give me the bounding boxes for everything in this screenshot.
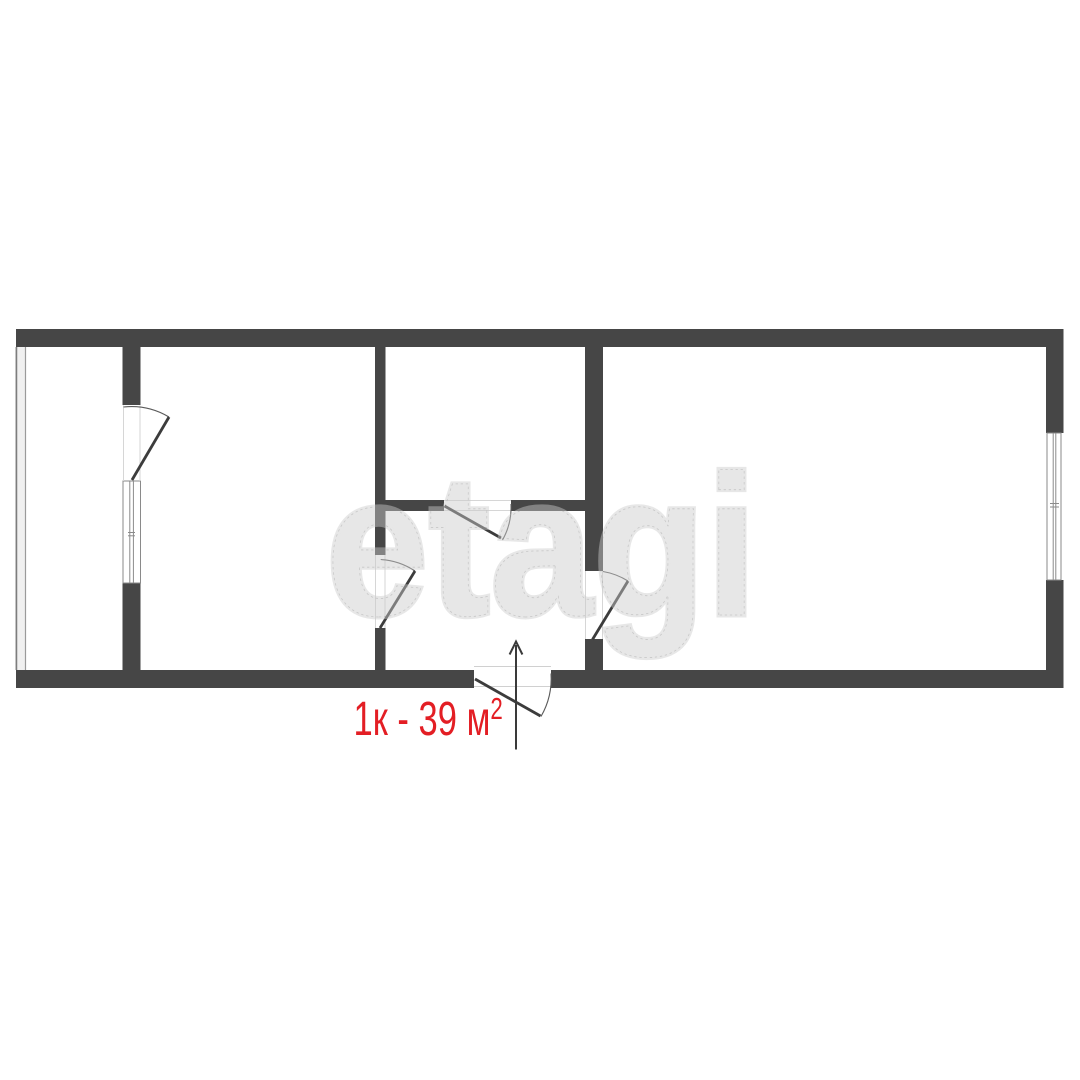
svg-text:1к - 39 м2: 1к - 39 м2 — [354, 691, 503, 745]
svg-text:etagi: etagi — [326, 433, 758, 658]
